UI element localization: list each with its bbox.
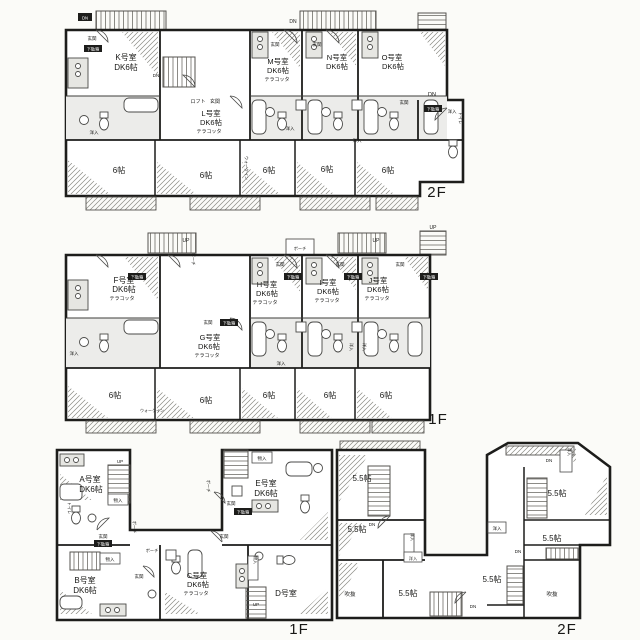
unit-note: テラコッタ bbox=[196, 128, 221, 135]
floor-label-1f: 1F bbox=[289, 621, 309, 638]
unit-name: H号室 bbox=[257, 279, 278, 289]
genkan-label: 玄関 bbox=[204, 319, 213, 326]
bathtub-icon bbox=[124, 320, 158, 334]
closet-label: 洋入 bbox=[286, 125, 295, 132]
dn-label: DN bbox=[289, 19, 297, 25]
bathtub-icon bbox=[308, 100, 322, 134]
shoebox-label: 下駄箱 bbox=[347, 274, 360, 281]
room-label: 6帖 bbox=[380, 390, 392, 400]
bathtub-icon bbox=[252, 100, 266, 134]
void-label: 吹抜 bbox=[344, 590, 356, 598]
closet-label: 洋入 bbox=[90, 129, 99, 136]
shoebox-label: 下駄箱 bbox=[87, 46, 100, 53]
unit-size: DK6帖 bbox=[79, 484, 103, 494]
closet-label: 洋入 bbox=[70, 350, 79, 357]
genkan-label: 玄関 bbox=[99, 533, 108, 540]
shoebox-label: 下駄箱 bbox=[97, 541, 110, 548]
room-label: 6帖 bbox=[113, 165, 125, 175]
shoebox-label: 下駄箱 bbox=[423, 274, 436, 281]
balcony-hatch bbox=[190, 197, 260, 210]
unit-note: テラコッタ bbox=[109, 295, 134, 302]
dn-label: DN bbox=[546, 458, 553, 463]
balcony-hatch bbox=[340, 441, 420, 450]
storage-label: 物入 bbox=[106, 556, 115, 563]
dn-label: DN bbox=[470, 604, 477, 609]
unit-name: C号室 bbox=[187, 570, 208, 580]
closet-label: 洋入 bbox=[409, 533, 416, 542]
floor-plan-canvas: DN DN DN DN 下駄箱 下駄箱 K号室 DK6帖 ロフト 玄関 L号室 … bbox=[0, 0, 640, 640]
closet-label: 洋入 bbox=[409, 555, 418, 562]
unit-name: O号室 bbox=[382, 52, 403, 62]
storage-label: 物入 bbox=[258, 455, 267, 462]
unit-size: DK6帖 bbox=[112, 284, 136, 294]
unit-size: DK6帖 bbox=[187, 579, 210, 589]
terrace-hatch bbox=[190, 421, 260, 433]
porch-label: ポーチ bbox=[294, 245, 307, 251]
shoebox-label: 下駄箱 bbox=[223, 320, 236, 327]
genkan-label: 玄関 bbox=[210, 98, 220, 105]
porch-label: ポーチ bbox=[206, 480, 212, 493]
unit-name: E号室 bbox=[255, 478, 276, 488]
unit-name: K号室 bbox=[115, 52, 136, 62]
room-label: 6帖 bbox=[263, 390, 275, 400]
floor-label-2f: 2F bbox=[557, 621, 577, 638]
floor-plan-sheet: DN DN DN DN 下駄箱 下駄箱 K号室 DK6帖 ロフト 玄関 L号室 … bbox=[0, 0, 640, 640]
up-label: UP bbox=[430, 225, 438, 231]
genkan-label: 玄関 bbox=[227, 500, 236, 507]
balcony-hatch bbox=[86, 197, 156, 210]
walkin-closet-label: ウォークイン bbox=[140, 407, 164, 413]
loft-label: ロフト bbox=[190, 99, 205, 105]
terrace-hatch bbox=[86, 421, 156, 433]
room-label: 5.5帖 bbox=[398, 588, 417, 598]
unit-name: J号室 bbox=[369, 275, 388, 285]
porch-label: ポーチ bbox=[191, 253, 197, 266]
up-label: UP bbox=[373, 238, 381, 244]
room-label: 5.5帖 bbox=[347, 524, 366, 534]
up-label: UP bbox=[183, 238, 191, 244]
dn-label: DN bbox=[369, 522, 376, 527]
bathtub-icon bbox=[364, 100, 378, 134]
unit-note: テラコッタ bbox=[252, 299, 277, 306]
closet-label: 洋入 bbox=[353, 137, 362, 144]
room-label: 6帖 bbox=[263, 165, 275, 175]
unit-name: F号室 bbox=[114, 275, 135, 285]
stairs-hatch bbox=[527, 478, 547, 518]
room-label: 6帖 bbox=[324, 390, 336, 400]
room-label: 5.5帖 bbox=[547, 488, 566, 498]
unit-size: DK6帖 bbox=[317, 286, 340, 296]
room-label: 6帖 bbox=[109, 390, 121, 400]
dn-label: DN bbox=[515, 549, 522, 554]
stairs-hatch bbox=[70, 552, 100, 570]
void-label: 吹抜 bbox=[546, 590, 558, 598]
unit-size: DK6帖 bbox=[382, 61, 405, 71]
plan-a-1f: UP UP UP ポーチ ポーチ 下駄箱 下駄箱 下駄箱 下駄箱 下駄箱 F号室… bbox=[66, 225, 448, 433]
genkan-label: 玄関 bbox=[313, 41, 322, 48]
terrace-hatch bbox=[372, 421, 424, 433]
porch-label: ポーチ bbox=[132, 521, 138, 534]
unit-size: DK6帖 bbox=[267, 65, 290, 75]
stairs-hatch bbox=[420, 231, 446, 255]
unit-note: テラコッタ bbox=[183, 590, 208, 597]
plan-b-2f: DN DN DN DN 5.5帖 5.5帖 5.5帖 5.5帖 5.5帖 5.5… bbox=[337, 441, 610, 638]
unit-name: L号室 bbox=[201, 108, 221, 118]
room-label: 5.5帖 bbox=[352, 473, 371, 483]
genkan-label: 玄関 bbox=[271, 41, 280, 48]
genkan-label: 玄関 bbox=[220, 533, 229, 540]
balcony-hatch bbox=[300, 197, 370, 210]
dn-label: DN bbox=[82, 16, 88, 21]
closet-label: 洋入 bbox=[566, 448, 573, 457]
unit-size: DK6帖 bbox=[200, 117, 223, 127]
unit-note: テラコッタ bbox=[314, 297, 339, 304]
storage-label: 物入 bbox=[252, 556, 259, 565]
porch-label: ポーチ bbox=[146, 547, 159, 553]
room-label: 5.5帖 bbox=[482, 574, 501, 584]
unit-name: A号室 bbox=[79, 474, 100, 484]
unit-name: G号室 bbox=[200, 332, 221, 342]
shoebox-label: 下駄箱 bbox=[427, 106, 440, 113]
bathtub-icon bbox=[252, 322, 266, 356]
closet-label: 洋入 bbox=[361, 343, 368, 352]
dn-label: DN bbox=[153, 73, 160, 78]
storage-label: 物入 bbox=[114, 497, 123, 504]
bathtub-icon bbox=[124, 98, 158, 112]
unit-size: DK6帖 bbox=[256, 288, 279, 298]
unit-size: DK6帖 bbox=[254, 488, 278, 498]
stairs-hatch bbox=[546, 548, 578, 559]
stairs-hatch bbox=[96, 11, 166, 30]
dn-label: DN bbox=[428, 92, 436, 98]
plan-b-1f: A号室 DK6帖 B号室 DK6帖 C号室 DK6帖 テラコッタ D号室 E号室… bbox=[57, 450, 332, 638]
unit-note: テラコッタ bbox=[264, 76, 289, 83]
closet-label: 洋入 bbox=[493, 525, 502, 532]
unit-name: I号室 bbox=[319, 277, 337, 287]
up-label: UP bbox=[117, 459, 123, 464]
plan-a-2f: DN DN DN DN 下駄箱 下駄箱 K号室 DK6帖 ロフト 玄関 L号室 … bbox=[66, 11, 463, 210]
unit-name: B号室 bbox=[74, 575, 95, 585]
room-label: 5.5帖 bbox=[542, 533, 561, 543]
toilet-label: トイレ bbox=[458, 112, 463, 125]
genkan-label: 玄関 bbox=[88, 35, 97, 42]
toilet-label: トイレ bbox=[67, 502, 72, 515]
floor-label-2f: 2F bbox=[427, 184, 447, 201]
walkin-closet-label: ウォークイン bbox=[244, 156, 250, 180]
stairs-hatch bbox=[300, 11, 376, 30]
unit-size: DK6帖 bbox=[326, 61, 349, 71]
room-label: 6帖 bbox=[321, 164, 333, 174]
unit-note: テラコッタ bbox=[194, 352, 219, 359]
closet-label: 洋入 bbox=[348, 343, 355, 352]
genkan-label: 玄関 bbox=[400, 99, 409, 106]
room-label: 6帖 bbox=[200, 170, 212, 180]
up-label: UP bbox=[253, 602, 259, 607]
stairs-hatch bbox=[430, 592, 462, 616]
floor-label-1f: 1F bbox=[428, 411, 448, 428]
room-label: 6帖 bbox=[382, 165, 394, 175]
bathtub-icon bbox=[408, 322, 422, 356]
closet-label: 洋入 bbox=[448, 108, 457, 115]
genkan-label: 玄関 bbox=[276, 261, 285, 268]
unit-size: DK6帖 bbox=[198, 341, 221, 351]
unit-name: N号室 bbox=[327, 52, 348, 62]
stairs-hatch bbox=[507, 566, 523, 604]
unit-name: D号室 bbox=[275, 588, 297, 598]
bathtub-icon bbox=[308, 322, 322, 356]
genkan-label: 玄関 bbox=[336, 261, 345, 268]
shoebox-label: 下駄箱 bbox=[287, 274, 300, 281]
stairs-hatch bbox=[224, 450, 248, 478]
unit-size: DK6帖 bbox=[114, 62, 138, 72]
unit-size: DK6帖 bbox=[73, 585, 97, 595]
balcony-hatch bbox=[376, 197, 418, 210]
room-label: 6帖 bbox=[200, 395, 212, 405]
genkan-label: 玄関 bbox=[135, 573, 144, 580]
unit-size: DK6帖 bbox=[367, 284, 390, 294]
closet-label: 洋入 bbox=[277, 360, 286, 367]
unit-name: M号室 bbox=[267, 56, 289, 66]
shoebox-label: 下駄箱 bbox=[237, 509, 250, 516]
genkan-label: 玄関 bbox=[396, 261, 405, 268]
terrace-hatch bbox=[300, 421, 370, 433]
unit-note: テラコッタ bbox=[364, 295, 389, 302]
